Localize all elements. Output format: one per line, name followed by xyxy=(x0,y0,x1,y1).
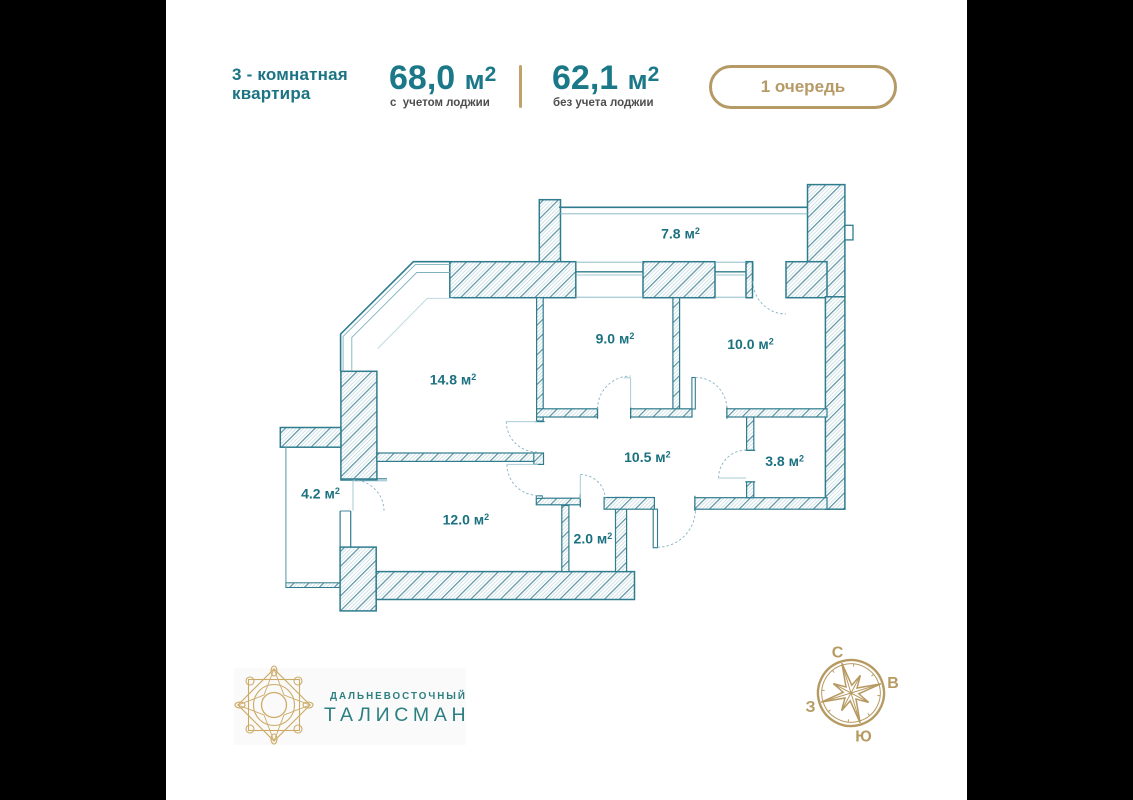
svg-text:3.8 м2: 3.8 м2 xyxy=(765,453,804,469)
svg-text:С: С xyxy=(832,645,844,662)
svg-text:7.8 м2: 7.8 м2 xyxy=(661,226,700,242)
svg-text:4.2 м2: 4.2 м2 xyxy=(301,486,340,502)
svg-text:10.5 м2: 10.5 м2 xyxy=(624,449,671,465)
svg-text:2.0 м2: 2.0 м2 xyxy=(574,531,613,547)
svg-text:10.0 м2: 10.0 м2 xyxy=(727,336,774,352)
svg-text:В: В xyxy=(887,675,899,692)
svg-text:14.8 м2: 14.8 м2 xyxy=(430,371,477,387)
svg-text:9.0 м2: 9.0 м2 xyxy=(596,330,635,346)
svg-text:12.0 м2: 12.0 м2 xyxy=(443,512,490,528)
svg-text:Ю: Ю xyxy=(855,729,872,746)
svg-text:З: З xyxy=(805,699,815,716)
